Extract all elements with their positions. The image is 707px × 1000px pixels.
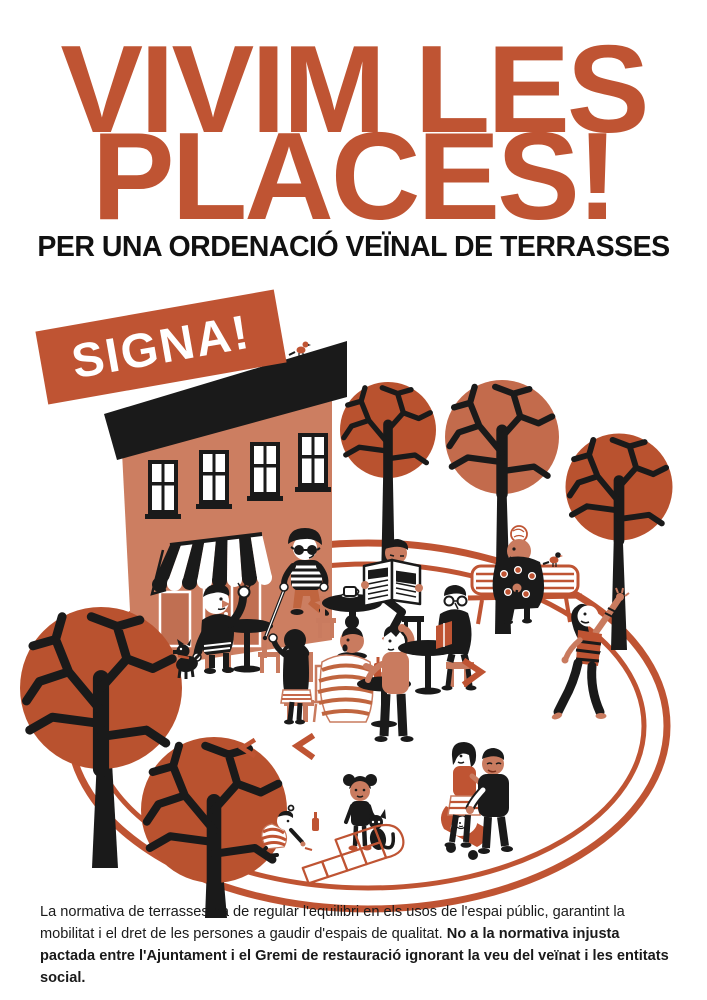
coffee-cup-icon bbox=[341, 587, 359, 599]
poster-title-line2: PLACES! bbox=[0, 134, 707, 221]
footer-paragraph: La normativa de terrasses ha de regular … bbox=[40, 901, 672, 989]
couple-with-stroller bbox=[441, 742, 513, 860]
poster-title: VIVIM LES PLACES! bbox=[0, 47, 707, 221]
chalk-bottle bbox=[312, 812, 319, 831]
poster-subtitle: PER UNA ORDENACIÓ VEÏNAL DE TERRASSES bbox=[0, 231, 707, 264]
hopscotch bbox=[299, 823, 407, 884]
